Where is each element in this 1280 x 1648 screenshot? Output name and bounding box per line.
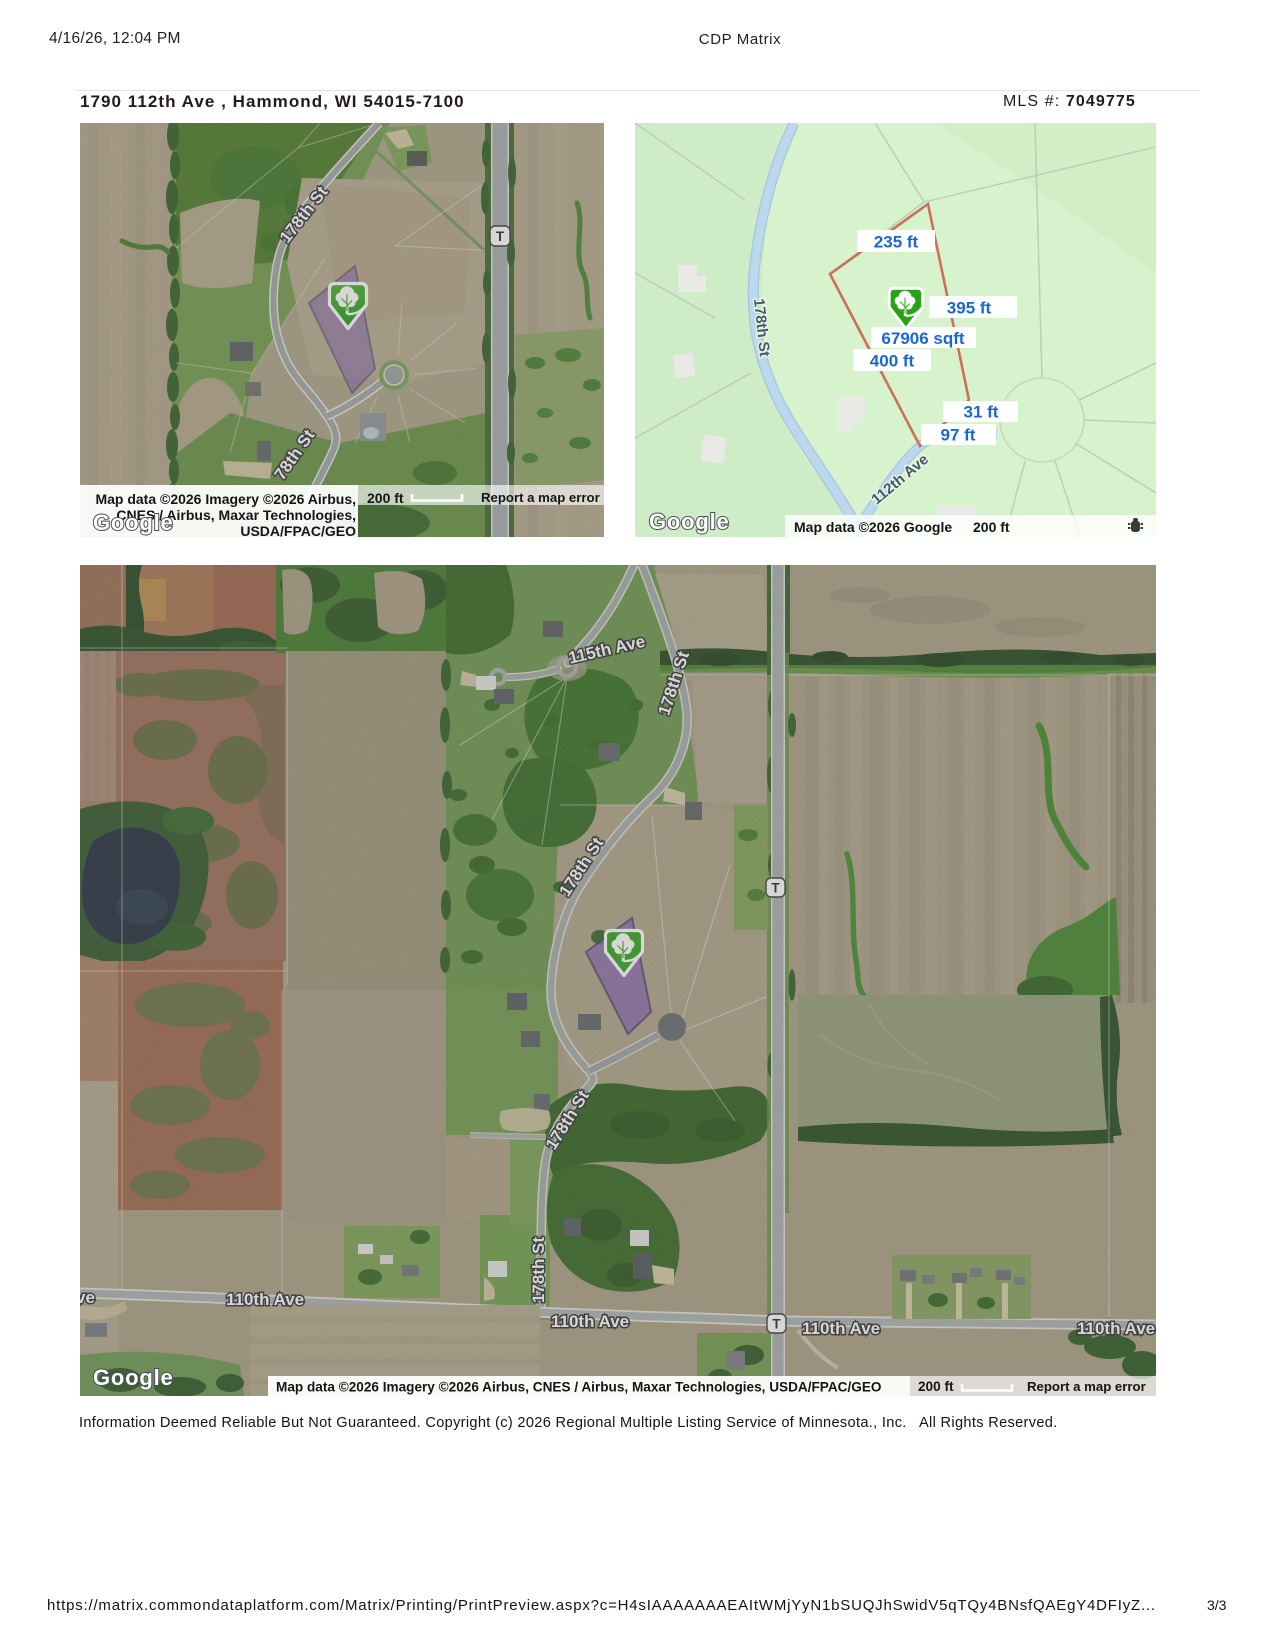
svg-text:Map data ©2026 Imagery ©2026 A: Map data ©2026 Imagery ©2026 Airbus, [95, 491, 356, 507]
svg-text:235 ft: 235 ft [874, 233, 919, 252]
svg-text:Report a map error: Report a map error [481, 490, 600, 505]
svg-text:Report a map error: Report a map error [1027, 1379, 1146, 1394]
svg-text:200 ft: 200 ft [367, 490, 404, 506]
svg-text:Google: Google [649, 509, 730, 534]
svg-text:Map data ©2026 Imagery ©2026 A: Map data ©2026 Imagery ©2026 Airbus, CNE… [276, 1380, 882, 1395]
svg-text:200 ft: 200 ft [918, 1379, 954, 1394]
svg-text:USDA/FPAC/GEO: USDA/FPAC/GEO [240, 523, 356, 537]
svg-text:Google: Google [93, 1365, 174, 1390]
svg-text:97 ft: 97 ft [941, 426, 976, 445]
svg-text:67906 sqft: 67906 sqft [881, 329, 964, 348]
svg-text:395 ft: 395 ft [947, 299, 992, 318]
svg-text:Google: Google [93, 510, 174, 535]
svg-text:400 ft: 400 ft [870, 352, 915, 371]
svg-text:200 ft: 200 ft [973, 519, 1010, 535]
svg-text:Map data ©2026 Google: Map data ©2026 Google [794, 519, 952, 535]
svg-text:31 ft: 31 ft [964, 403, 999, 422]
